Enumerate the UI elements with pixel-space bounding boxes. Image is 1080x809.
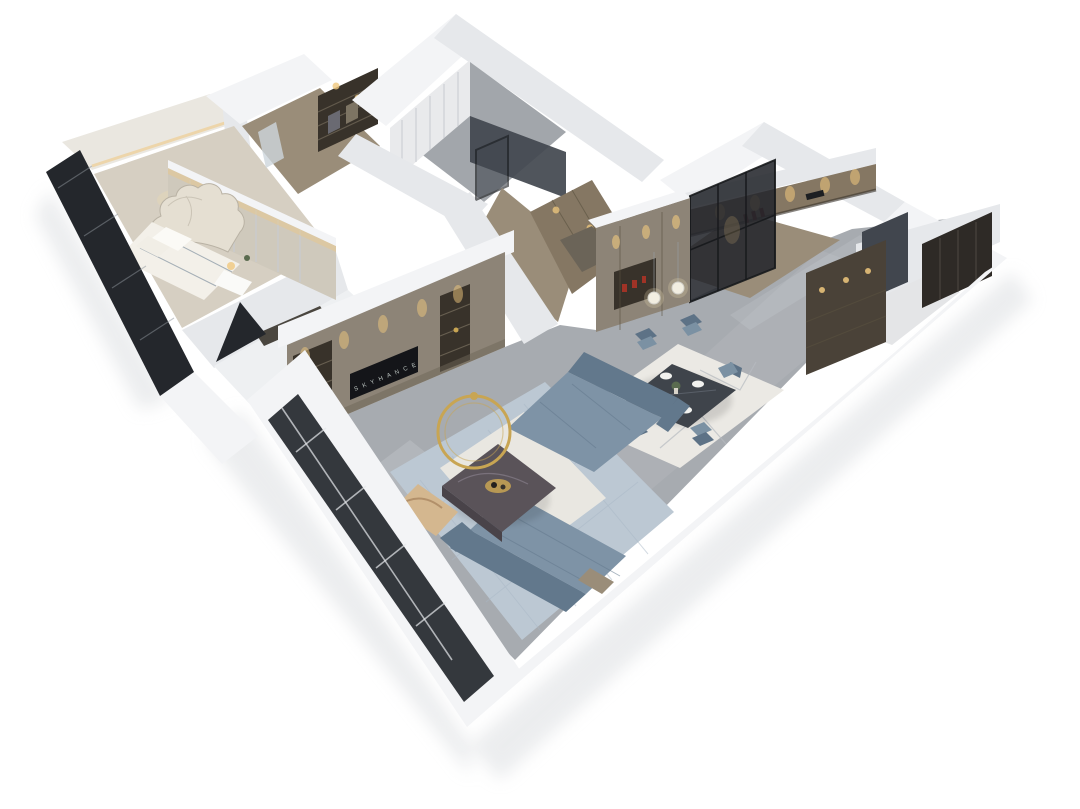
table-lamp-glow bbox=[227, 262, 235, 270]
closet-downlight bbox=[333, 83, 340, 90]
tray-decor bbox=[501, 485, 506, 490]
gold-tray bbox=[485, 479, 511, 493]
floorplan-render: S K Y H A N C E bbox=[0, 0, 1080, 809]
floorplan-scene: S K Y H A N C E bbox=[0, 0, 1080, 809]
hallway-downlight bbox=[553, 207, 560, 214]
nightstand-plant bbox=[244, 255, 250, 261]
glass-glow bbox=[724, 216, 740, 244]
tray-decor bbox=[491, 482, 497, 488]
vase bbox=[674, 388, 678, 394]
shelf-decor bbox=[454, 328, 459, 333]
